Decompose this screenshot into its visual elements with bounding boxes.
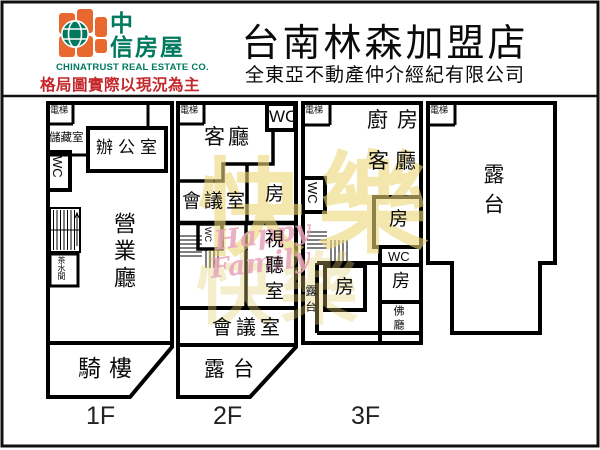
floor-label-2f: 2F xyxy=(213,404,242,429)
disclaimer-text: 格局圖實際以現況為主 xyxy=(40,73,200,95)
room-label-2f-elevator: 電梯 xyxy=(180,107,198,116)
room-label-1f-elevator: 電梯 xyxy=(50,107,68,116)
room-label-1f-hall: 營業廳 xyxy=(111,212,133,293)
brand-name-line1: 中 xyxy=(110,11,185,35)
room-label-1f-arcade: 騎樓 xyxy=(78,358,140,381)
room-label-3f-elevator: 電梯 xyxy=(305,107,323,116)
room-label-1f-tea: 茶水間 xyxy=(57,256,65,280)
room-label-2f-wc-stairs: WC xyxy=(203,227,212,242)
room-label-2f-terrace: 露台 xyxy=(204,359,262,380)
room-label-3f-wc-right: WC xyxy=(388,250,410,263)
room-label-3f-room-left: 房 xyxy=(335,278,354,297)
logo-mark xyxy=(58,8,110,62)
floor-label-3f: 3F xyxy=(351,404,380,429)
room-label-1f-office: 辦公室 xyxy=(96,140,162,157)
room-label-3f-terrace-side: 露台 xyxy=(305,285,316,317)
globe-icon xyxy=(61,20,89,48)
room-label-2f-living: 客廳 xyxy=(204,127,252,148)
brand-name-en: CHINATRUST REAL ESTATE CO. xyxy=(56,62,209,73)
room-label-2f-av-room: 視聽室 xyxy=(263,229,282,307)
brand-name-line2: 信房屋 xyxy=(110,35,185,59)
room-label-1f-storage: 儲藏室 xyxy=(49,132,84,144)
room-label-3f-living: 客廳 xyxy=(368,151,422,172)
room-label-3f-wc-left: WC xyxy=(306,182,319,204)
company-subtitle: 全東亞不動產仲介經紀有限公司 xyxy=(232,60,538,87)
room-label-2f-room: 房 xyxy=(265,185,284,204)
floorplan-flyer: 中 信房屋 CHINATRUST REAL ESTATE CO. 格局圖實際以現… xyxy=(0,0,600,450)
room-label-2f-wc-top: WC xyxy=(269,108,297,125)
room-label-roof-terrace: 露台 xyxy=(482,163,503,223)
room-label-3f-room-right: 房 xyxy=(392,273,410,291)
room-label-2f-meeting-upper: 會議室 xyxy=(182,192,248,211)
room-label-roof-elevator: 電梯 xyxy=(430,107,448,116)
brand-name: 中 信房屋 xyxy=(110,11,185,59)
room-label-3f-kitchen: 廚房 xyxy=(367,110,427,131)
floor-label-1f: 1F xyxy=(86,404,115,429)
room-label-2f-meeting-lower: 會議室 xyxy=(212,317,284,337)
store-title: 台南林森加盟店 xyxy=(232,12,538,67)
room-label-3f-room-top: 房 xyxy=(389,210,408,229)
room-label-1f-wc: WC xyxy=(51,156,64,178)
room-label-3f-buddha: 佛廳 xyxy=(393,305,404,333)
